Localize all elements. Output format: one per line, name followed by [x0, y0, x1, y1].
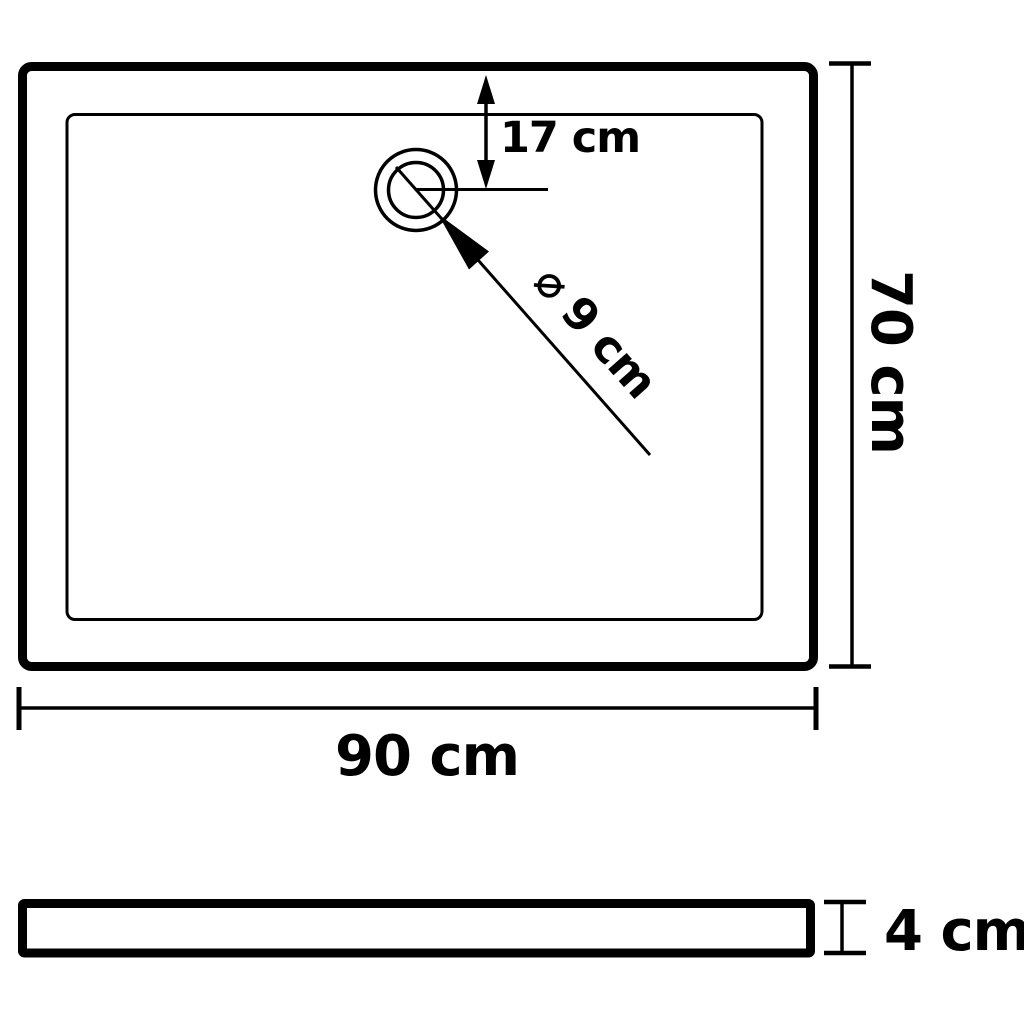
dimension-width: 90 cm: [19, 687, 816, 789]
dimension-diagram: 17 cm ⌀ 9 cm 70 cm 90 cm: [0, 0, 1024, 1024]
drain-arrowhead-icon: [438, 214, 489, 270]
width-label: 90 cm: [335, 724, 519, 789]
drain-diameter-label: ⌀ 9 cm: [524, 255, 668, 408]
dimension-drain-offset: 17 cm: [477, 75, 640, 189]
diagram-canvas: 17 cm ⌀ 9 cm 70 cm 90 cm: [0, 0, 1024, 1024]
tray-outer-edge: [23, 67, 814, 667]
dimension-height: 4 cm: [824, 899, 1024, 964]
offset-arrow-down-icon: [477, 160, 495, 189]
drain-offset-label: 17 cm: [500, 113, 640, 163]
depth-label: 70 cm: [858, 270, 923, 454]
height-label: 4 cm: [884, 899, 1024, 964]
top-view: [23, 67, 814, 667]
side-view: [23, 904, 811, 954]
tray-profile-outline: [23, 904, 811, 954]
dimension-depth: 70 cm: [829, 64, 923, 667]
offset-arrow-up-icon: [477, 75, 495, 104]
